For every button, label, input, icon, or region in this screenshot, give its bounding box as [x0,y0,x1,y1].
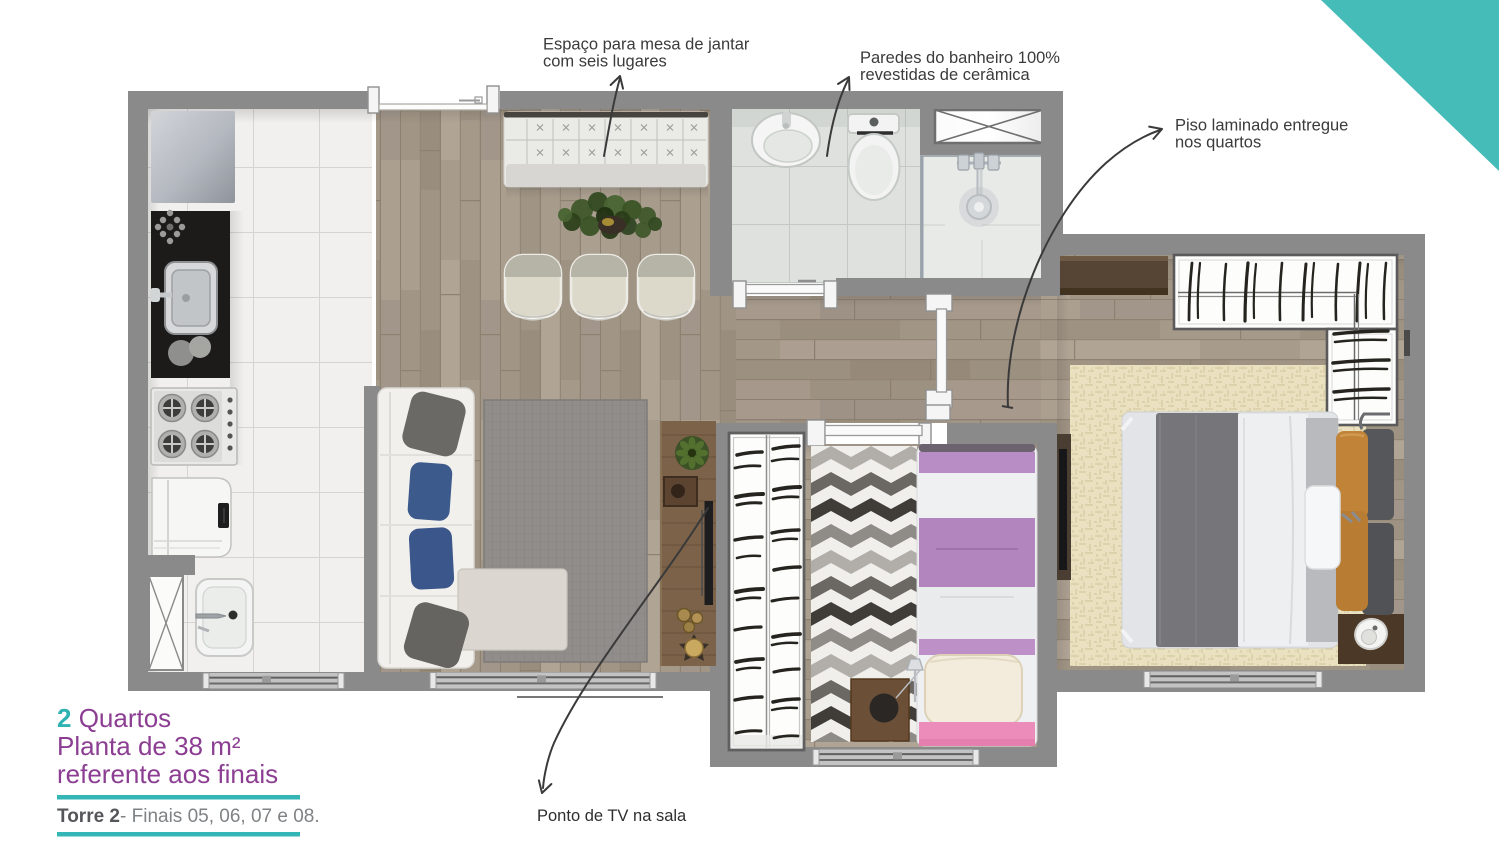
svg-text:Piso laminado entregue: Piso laminado entregue [1175,117,1348,135]
svg-text:Planta de 38 m²: Planta de 38 m² [57,731,241,761]
svg-text:nos quartos: nos quartos [1175,134,1261,152]
svg-text:revestidas de cerâmica: revestidas de cerâmica [860,66,1030,84]
svg-text:Ponto de TV na sala: Ponto de TV na sala [537,807,687,825]
svg-text:Paredes do banheiro 100%: Paredes do banheiro 100% [860,49,1060,67]
svg-text:Torre 2- Finais 05, 06, 07 e 0: Torre 2- Finais 05, 06, 07 e 08. [57,806,320,827]
svg-text:com seis lugares: com seis lugares [543,53,667,71]
svg-text:Espaço para mesa de jantar: Espaço para mesa de jantar [543,36,750,54]
svg-text:2 Quartos: 2 Quartos [57,703,171,733]
svg-text:referente aos finais: referente aos finais [57,759,278,789]
